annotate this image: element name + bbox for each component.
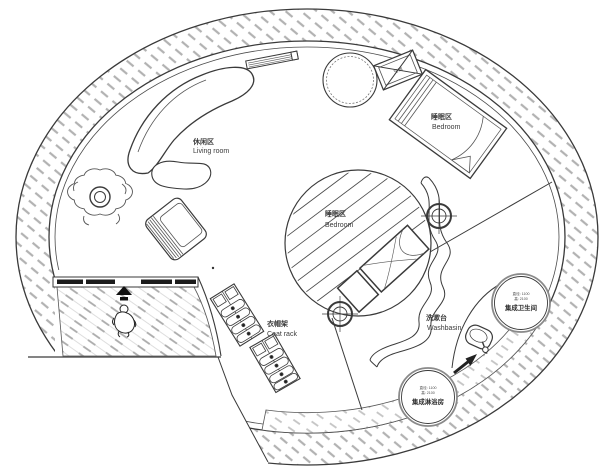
area-label-living-en: Living room xyxy=(193,148,229,155)
shower-dim1: 直径: 1100 xyxy=(420,385,437,390)
coffee-table xyxy=(152,161,211,189)
bathroom-label: 集成卫生间 xyxy=(504,303,537,312)
coat-rack xyxy=(250,333,300,392)
area-label-washbasin-zh: 洗漱台 xyxy=(426,313,447,322)
partition-line xyxy=(430,182,552,252)
entry-deck xyxy=(28,270,225,357)
armchair xyxy=(143,196,208,262)
area-label-bedroom-center-zh: 睡眠区 xyxy=(325,209,346,218)
area-label-washbasin-en: Washbasin xyxy=(427,325,461,332)
plant-icon xyxy=(68,169,133,225)
area-label-bedroom-upper-en: Bedroom xyxy=(432,124,461,131)
bathroom-pod: 直径: 1100 高: 2100 集成卫生间 xyxy=(492,274,550,332)
shower-pod: 直径: 1100 高: 2100 集成淋浴房 xyxy=(399,368,457,426)
area-label-coatrack-zh: 衣帽架 xyxy=(267,319,288,328)
bathroom-dim1: 直径: 1100 xyxy=(513,291,530,296)
reference-dot xyxy=(212,267,214,269)
area-label-bedroom-center-en: Bedroom xyxy=(325,222,354,229)
window-segment xyxy=(175,280,196,285)
floor-plan-canvas: 空调 xyxy=(0,0,611,473)
area-label-living-zh: 休闲区 xyxy=(192,137,214,146)
bathroom-dim2: 高: 2100 xyxy=(514,296,528,301)
area-label-coatrack-en: Coat rack xyxy=(267,331,297,338)
round-table xyxy=(323,53,377,107)
deck-floor xyxy=(57,287,216,356)
area-label-bedroom-upper-zh: 睡眠区 xyxy=(431,112,452,121)
window-segment xyxy=(141,280,172,285)
wall-shelf xyxy=(246,51,299,69)
void-mask xyxy=(0,357,268,473)
floor-plan-page: 空调 xyxy=(0,0,611,473)
partition-line xyxy=(332,318,362,410)
window-segment xyxy=(57,280,83,285)
shower-label: 集成淋浴房 xyxy=(411,397,445,406)
window-segment xyxy=(86,280,115,285)
shower-dim2: 高: 2100 xyxy=(421,390,435,395)
